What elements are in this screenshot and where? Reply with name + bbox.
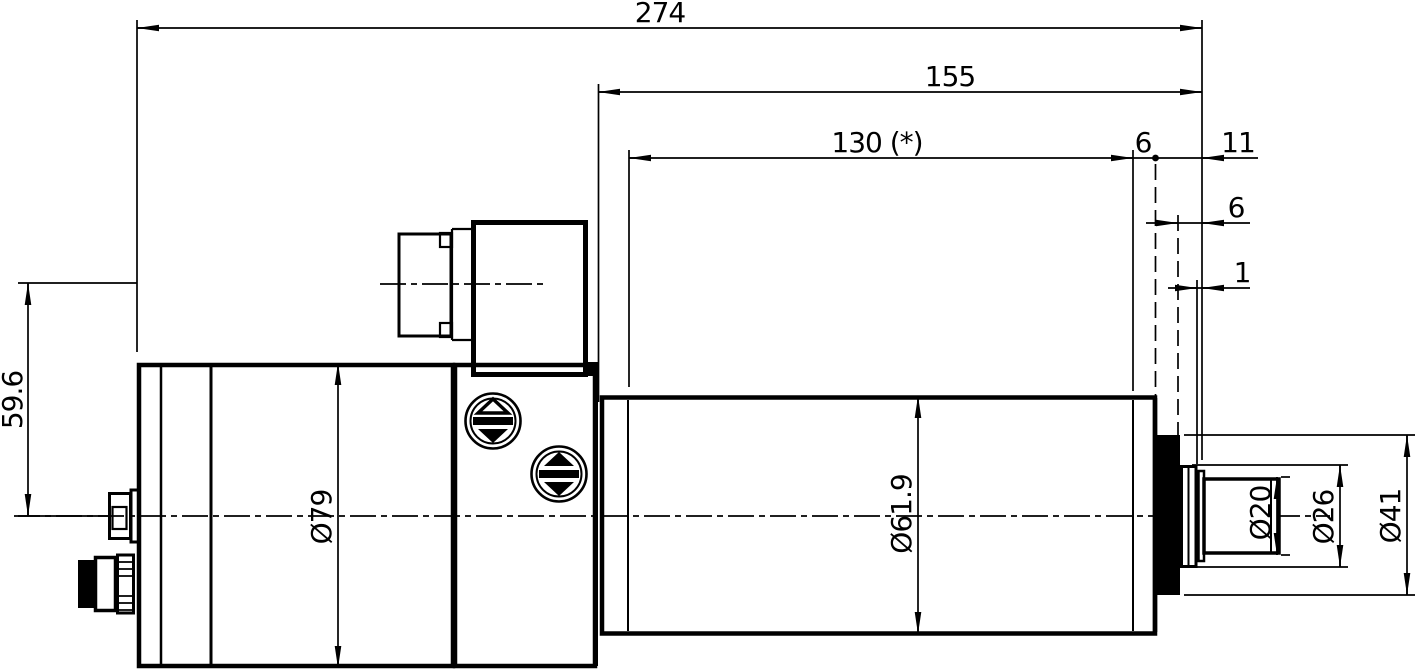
- dim-1-label: 1: [1234, 256, 1251, 289]
- technical-drawing: 274 155 130 (*) 6 11: [0, 0, 1417, 672]
- screw-plug-upper: [466, 394, 521, 449]
- seal-ring: [1157, 435, 1180, 595]
- dim-6-face-label: 6: [1135, 126, 1152, 159]
- dim-dia-79: Ø79: [305, 363, 338, 668]
- connector-box: [474, 223, 586, 375]
- dim-59-6-label: 59.6: [0, 371, 29, 430]
- part-outline: [78, 223, 1279, 667]
- dim-dia-20-label: Ø20: [1244, 486, 1277, 541]
- dim-dia-61-9: Ø61.9: [885, 396, 918, 634]
- dim-130-label: 130 (*): [831, 126, 922, 159]
- dim-274-label: 274: [635, 0, 686, 29]
- dim-dia-61-9-label: Ø61.9: [885, 474, 918, 553]
- dim-1: 1: [1168, 256, 1250, 464]
- screw-plug-lower: [532, 447, 587, 502]
- dim-155-label: 155: [925, 60, 975, 93]
- dim-dia-26-label: Ø26: [1307, 489, 1340, 544]
- dim-6-collar-label: 6: [1228, 191, 1245, 224]
- drawing-canvas: 274 155 130 (*) 6 11: [0, 0, 1417, 672]
- dim-dia-41-label: Ø41: [1374, 489, 1407, 544]
- dim-130: 130 (*): [629, 126, 1133, 391]
- dim-59-6: 59.6: [0, 283, 137, 516]
- dim-dia-79-label: Ø79: [305, 490, 338, 545]
- lower-connector: [78, 555, 134, 613]
- dim-155: 155: [598, 60, 1202, 402]
- plug-barrel: [399, 234, 451, 336]
- dim-274: 274: [137, 0, 1202, 352]
- dim-11-label: 11: [1221, 126, 1255, 159]
- dim-6-collar: 6: [1146, 191, 1250, 458]
